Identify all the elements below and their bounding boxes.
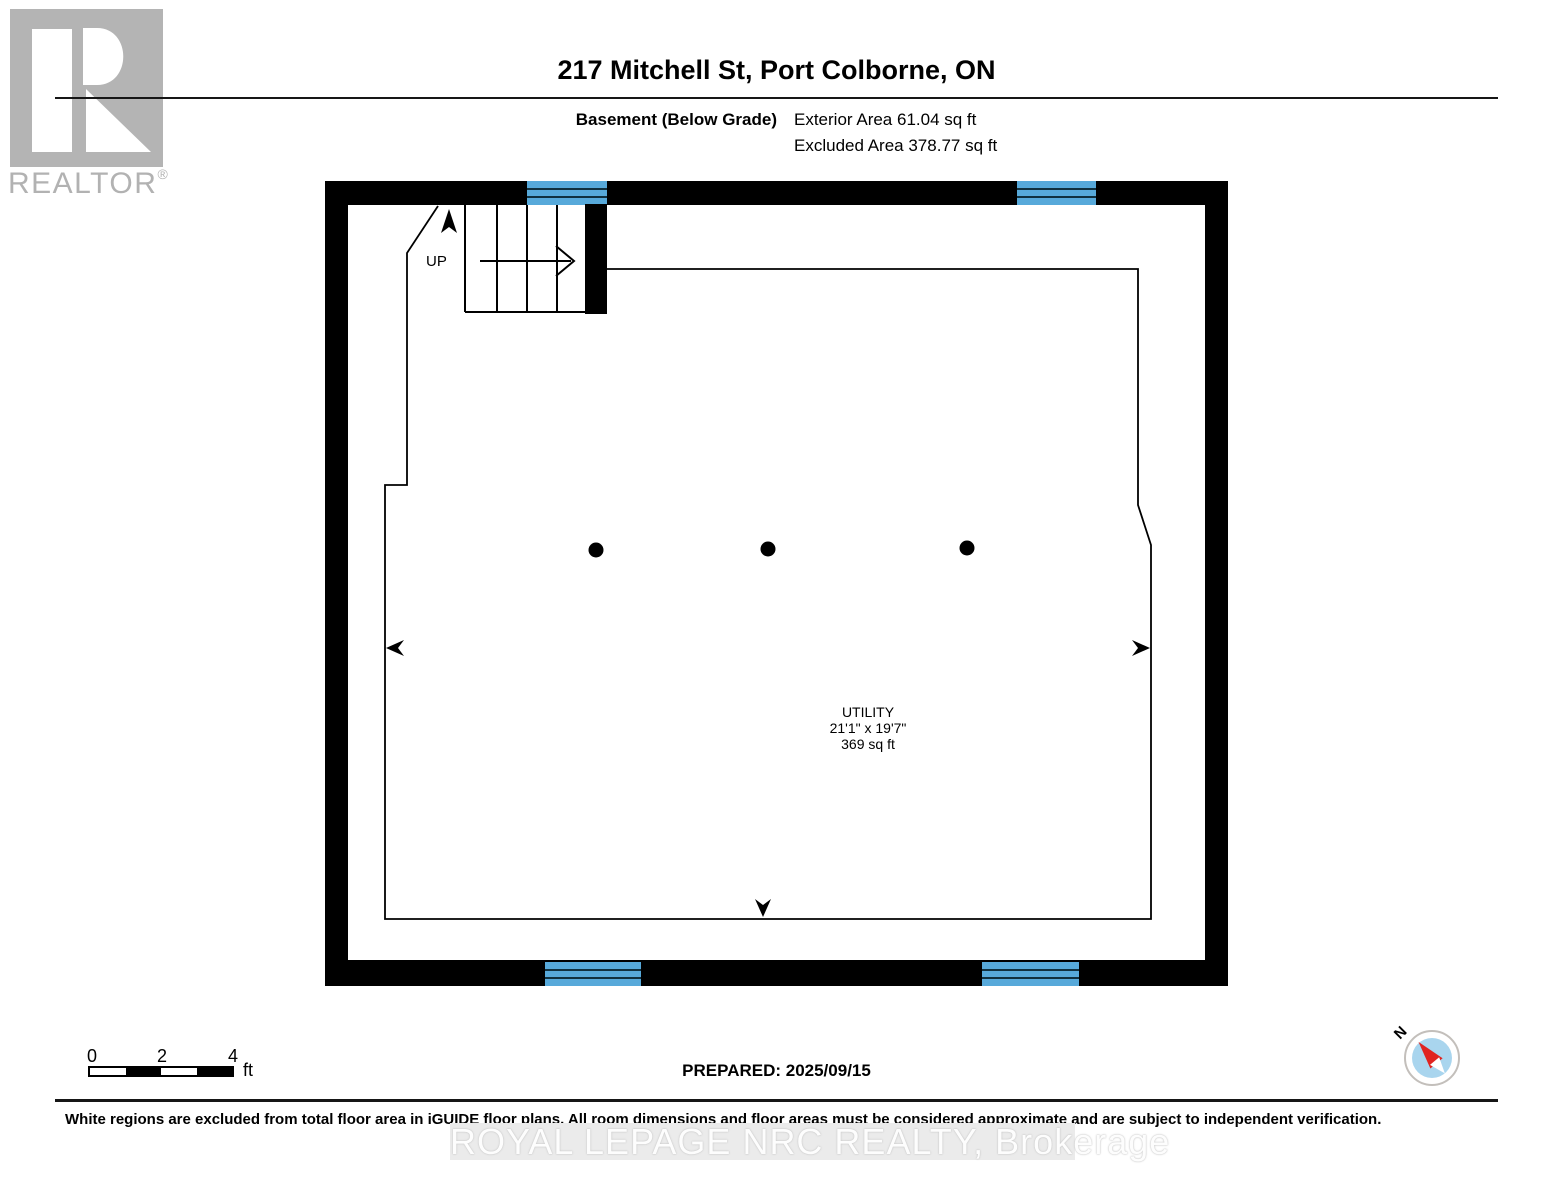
room-dimensions: 21'1" x 19'7" (830, 720, 907, 736)
window-icon (527, 181, 607, 205)
excluded-area-text: Excluded Area 378.77 sq ft (794, 136, 997, 156)
exterior-area-text: Exterior Area 61.04 sq ft (794, 110, 976, 130)
page-title: 217 Mitchell St, Port Colborne, ON (0, 55, 1553, 86)
registered-trademark: ® (157, 166, 169, 182)
room-area: 369 sq ft (841, 736, 895, 752)
brokerage-watermark: ROYAL LEPAGE NRC REALTY, Brokerage (450, 1123, 1075, 1160)
window-icon (1017, 181, 1096, 205)
column-post (589, 543, 604, 558)
column-post (960, 541, 975, 556)
realtor-logo-icon (10, 9, 163, 167)
column-post (761, 542, 776, 557)
realtor-wordmark: REALTOR® (8, 166, 169, 201)
floor-area (348, 205, 1205, 960)
stairs-up-label: UP (426, 253, 447, 270)
floor-plan: UP UTILITY 21'1" x 19'7" 369 sq ft (325, 181, 1228, 986)
floor-label: Basement (Below Grade) (576, 110, 777, 130)
header-divider (55, 97, 1498, 99)
window-icon (982, 962, 1079, 986)
compass-north-label: N (1392, 1023, 1410, 1043)
prepared-date: PREPARED: 2025/09/15 (0, 1061, 1553, 1081)
watermark-text: ROYAL LEPAGE NRC REALTY, Brokerage (450, 1121, 1170, 1162)
compass-icon: N (1392, 1016, 1472, 1096)
footer-divider (55, 1099, 1498, 1102)
room-name: UTILITY (842, 704, 895, 720)
window-icon (545, 962, 641, 986)
